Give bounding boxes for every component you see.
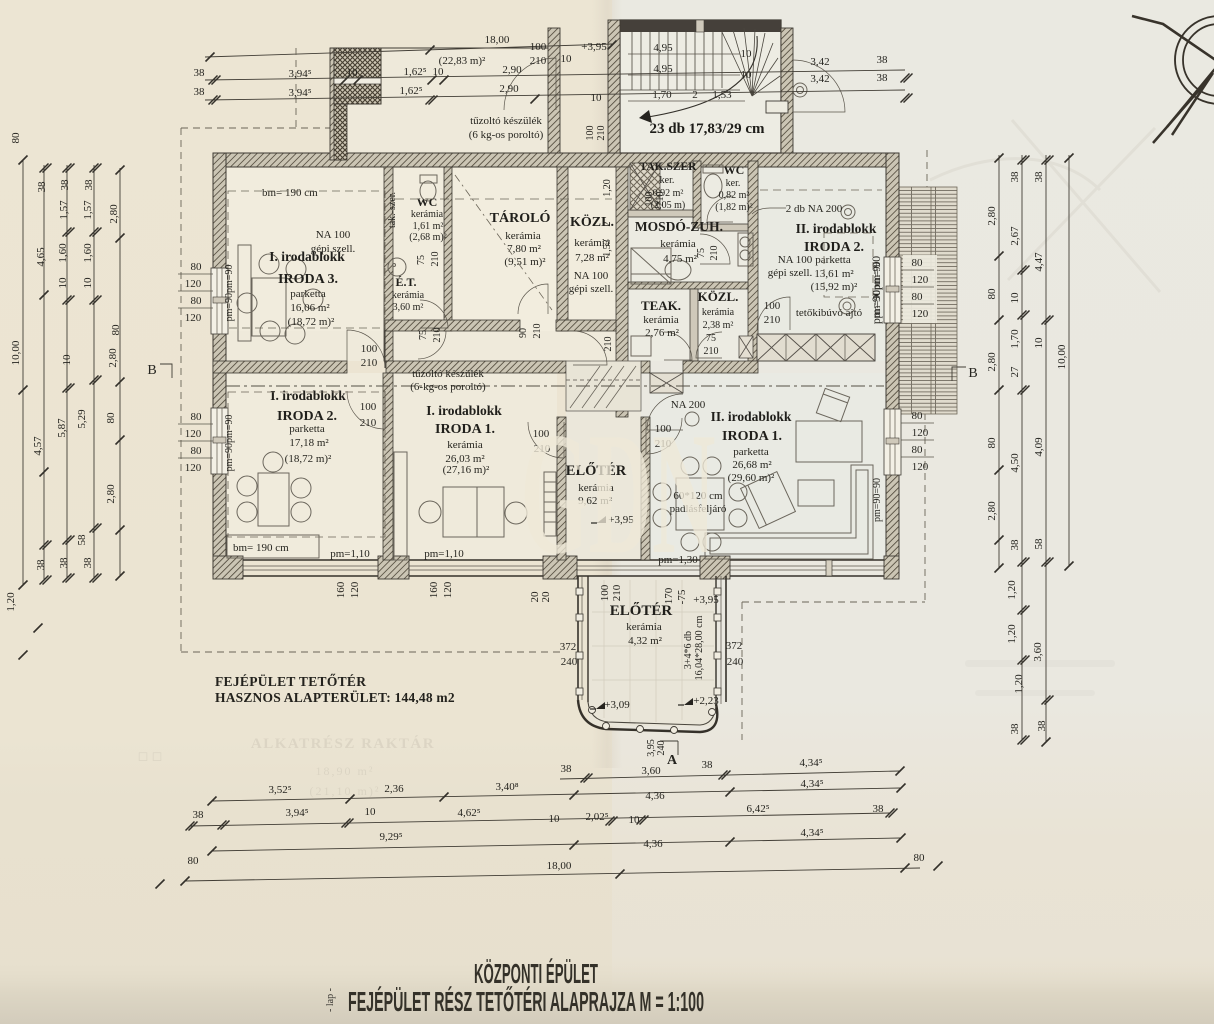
svg-text:pm=90pm=90: pm=90pm=90 xyxy=(872,262,883,319)
svg-text:20: 20 xyxy=(540,591,552,603)
svg-text:38: 38 xyxy=(877,72,889,84)
svg-text:NA 100: NA 100 xyxy=(778,254,813,266)
svg-text:4,47: 4,47 xyxy=(1033,252,1045,272)
svg-text:1,70: 1,70 xyxy=(1009,329,1021,349)
svg-text:10: 10 xyxy=(741,48,753,60)
svg-text:(27,16 m)²: (27,16 m)² xyxy=(443,464,490,476)
svg-text:120: 120 xyxy=(912,461,929,473)
svg-text:58: 58 xyxy=(1033,538,1045,550)
svg-text:1,70: 1,70 xyxy=(652,89,672,101)
svg-text:tűzoltó készülék: tűzoltó készülék xyxy=(470,115,542,127)
svg-text:gépi szell.: gépi szell. xyxy=(569,283,614,295)
svg-text:2,90: 2,90 xyxy=(502,64,522,76)
svg-text:WC: WC xyxy=(417,195,438,209)
svg-text:80: 80 xyxy=(105,412,117,424)
svg-text:80: 80 xyxy=(10,132,22,144)
svg-text:3,60 m²: 3,60 m² xyxy=(393,302,424,313)
svg-text:1,62⁵: 1,62⁵ xyxy=(399,85,422,97)
svg-text:38: 38 xyxy=(877,54,889,66)
svg-text:kerámia: kerámia xyxy=(392,290,425,301)
svg-text:II. irodablokk: II. irodablokk xyxy=(711,409,792,424)
svg-text:10: 10 xyxy=(741,69,753,81)
svg-text:3,94⁵: 3,94⁵ xyxy=(285,807,308,819)
svg-text:80: 80 xyxy=(191,295,203,307)
svg-text:100: 100 xyxy=(360,401,377,413)
svg-text:2,36: 2,36 xyxy=(384,783,404,795)
svg-text:38: 38 xyxy=(83,179,95,191)
svg-text:38: 38 xyxy=(194,67,206,79)
svg-text:26,68 m²: 26,68 m² xyxy=(732,459,772,471)
svg-text:13,61 m²: 13,61 m² xyxy=(814,268,854,280)
svg-text:2,38 m²: 2,38 m² xyxy=(703,320,734,331)
svg-text:38: 38 xyxy=(1009,723,1021,735)
svg-text:120: 120 xyxy=(185,462,202,474)
svg-text:◻ ◻: ◻ ◻ xyxy=(138,748,163,763)
svg-text:(6 kg-os poroltó): (6 kg-os poroltó) xyxy=(469,129,544,141)
svg-text:4,75 m²: 4,75 m² xyxy=(663,253,698,265)
svg-text:ker.: ker. xyxy=(726,178,741,189)
svg-text:1,61 m²: 1,61 m² xyxy=(413,221,444,232)
svg-text:4,36: 4,36 xyxy=(645,790,665,802)
svg-text:pm=1,10: pm=1,10 xyxy=(330,548,370,560)
svg-text:pm=1,10: pm=1,10 xyxy=(424,548,464,560)
svg-text:1,57: 1,57 xyxy=(58,200,70,220)
svg-text:10: 10 xyxy=(82,277,94,289)
svg-text:kerámia: kerámia xyxy=(626,621,662,633)
svg-text:IRODA 2.: IRODA 2. xyxy=(804,240,864,255)
svg-text:2,80: 2,80 xyxy=(108,204,120,224)
svg-text:38: 38 xyxy=(1009,539,1021,551)
svg-text:I. irodablokk: I. irodablokk xyxy=(426,403,502,418)
svg-text:5,29: 5,29 xyxy=(76,409,88,429)
svg-text:4,34⁵: 4,34⁵ xyxy=(799,757,822,769)
svg-text:4,95: 4,95 xyxy=(653,42,673,54)
svg-text:2,80: 2,80 xyxy=(986,501,998,521)
svg-text:75: 75 xyxy=(418,330,429,340)
svg-text:210: 210 xyxy=(361,357,378,369)
svg-text:3,60: 3,60 xyxy=(1032,642,1044,662)
svg-text:kerámia: kerámia xyxy=(702,307,735,318)
svg-text:120: 120 xyxy=(442,581,454,598)
svg-text:80: 80 xyxy=(912,444,924,456)
svg-text:10: 10 xyxy=(549,813,561,825)
svg-text:pm=90=90: pm=90=90 xyxy=(872,478,883,522)
svg-text:4,50: 4,50 xyxy=(1009,453,1021,473)
svg-text:B: B xyxy=(968,366,977,381)
svg-text:80: 80 xyxy=(191,411,203,423)
svg-text:IRODA 3.: IRODA 3. xyxy=(278,272,338,287)
svg-text:1,60: 1,60 xyxy=(82,243,94,263)
svg-text:2,80: 2,80 xyxy=(107,348,119,368)
svg-text:17,18 m²: 17,18 m² xyxy=(289,437,329,449)
svg-text:18,00: 18,00 xyxy=(485,34,510,46)
svg-text:4,34⁵: 4,34⁵ xyxy=(800,778,823,790)
svg-text:80: 80 xyxy=(912,257,924,269)
svg-text:pm=90pm=90: pm=90pm=90 xyxy=(224,415,235,472)
svg-text:160: 160 xyxy=(335,581,347,598)
svg-text:kerámia: kerámia xyxy=(411,209,444,220)
svg-text:120: 120 xyxy=(185,428,202,440)
svg-text:parketta: parketta xyxy=(289,423,325,435)
svg-text:(1,82 m)²: (1,82 m)² xyxy=(715,202,752,213)
svg-text:100: 100 xyxy=(530,41,547,53)
svg-text:I. irodablokk: I. irodablokk xyxy=(270,388,346,403)
svg-text:240: 240 xyxy=(727,656,744,668)
svg-text:38: 38 xyxy=(873,803,885,815)
svg-text:210: 210 xyxy=(360,417,377,429)
svg-text:120: 120 xyxy=(912,427,929,439)
svg-text:NA 100: NA 100 xyxy=(574,270,609,282)
svg-text:I. irodablokk: I. irodablokk xyxy=(269,249,345,264)
svg-text:gépi szell.: gépi szell. xyxy=(768,267,813,279)
svg-text:38: 38 xyxy=(193,809,205,821)
svg-text:38: 38 xyxy=(1009,171,1021,183)
svg-text:1,62⁵: 1,62⁵ xyxy=(403,66,426,78)
svg-text:75: 75 xyxy=(696,248,707,258)
svg-text:(21,10 m)²: (21,10 m)² xyxy=(310,784,381,798)
svg-text:parketta: parketta xyxy=(290,288,326,300)
svg-text:(15,92 m)²: (15,92 m)² xyxy=(811,281,858,293)
svg-text:4,36: 4,36 xyxy=(643,838,663,850)
svg-text:6,42⁵: 6,42⁵ xyxy=(746,803,769,815)
svg-text:4,34⁵: 4,34⁵ xyxy=(800,827,823,839)
svg-text:80: 80 xyxy=(986,288,998,300)
svg-text:10: 10 xyxy=(591,92,603,104)
svg-text:38: 38 xyxy=(1036,720,1048,732)
svg-text:80: 80 xyxy=(191,261,203,273)
svg-text:kerámia: kerámia xyxy=(660,238,696,250)
svg-text:80: 80 xyxy=(914,852,926,864)
svg-text:120: 120 xyxy=(912,274,929,286)
svg-text:(6-kg-os poroltó): (6-kg-os poroltó) xyxy=(410,381,486,393)
svg-text:210: 210 xyxy=(596,126,607,141)
svg-text:27: 27 xyxy=(1009,366,1021,378)
svg-text:IRODA 1.: IRODA 1. xyxy=(722,429,782,444)
svg-text:80: 80 xyxy=(191,445,203,457)
svg-text:1,53: 1,53 xyxy=(602,239,613,257)
svg-text:10: 10 xyxy=(561,53,573,65)
svg-text:16,06 m²: 16,06 m² xyxy=(290,302,330,314)
svg-text:(22,83 m)²: (22,83 m)² xyxy=(439,55,486,67)
svg-text:38: 38 xyxy=(58,557,70,569)
svg-text:bm= 190 cm: bm= 190 cm xyxy=(233,542,289,554)
svg-text:100: 100 xyxy=(764,300,781,312)
svg-text:210: 210 xyxy=(430,252,441,267)
svg-text:(18,72 m)²: (18,72 m)² xyxy=(285,453,332,465)
svg-text:KÖZPONTI ÉPÜLET: KÖZPONTI ÉPÜLET xyxy=(474,958,598,989)
svg-text:4,65: 4,65 xyxy=(35,247,47,267)
svg-text:TAK.SZER: TAK.SZER xyxy=(640,161,698,173)
svg-text:(18,72 m)²: (18,72 m)² xyxy=(288,316,335,328)
svg-text:(9,51 m)²: (9,51 m)² xyxy=(504,256,546,268)
svg-text:160: 160 xyxy=(428,581,440,598)
svg-text:240: 240 xyxy=(656,741,667,756)
svg-text:210: 210 xyxy=(603,337,614,352)
svg-text:210: 210 xyxy=(655,192,666,207)
svg-text:80: 80 xyxy=(912,291,924,303)
svg-text:100: 100 xyxy=(361,343,378,355)
svg-text:2,80: 2,80 xyxy=(986,352,998,372)
svg-text:16,04*28,00 cm: 16,04*28,00 cm xyxy=(694,615,705,680)
svg-text:90: 90 xyxy=(518,328,529,338)
svg-text:120: 120 xyxy=(185,312,202,324)
svg-text:-75: -75 xyxy=(676,589,688,604)
svg-text:KÖZL.: KÖZL. xyxy=(698,289,739,304)
svg-text:210: 210 xyxy=(764,314,781,326)
svg-text:2,02⁵: 2,02⁵ xyxy=(585,811,608,823)
svg-text:10,00: 10,00 xyxy=(10,340,22,365)
svg-text:38: 38 xyxy=(36,181,48,193)
svg-text:3,52⁵: 3,52⁵ xyxy=(268,784,291,796)
svg-text:1,53: 1,53 xyxy=(712,89,732,101)
svg-text:10,00: 10,00 xyxy=(1056,344,1068,369)
svg-text:10: 10 xyxy=(1009,292,1021,304)
svg-text:58: 58 xyxy=(76,534,88,546)
svg-text:2,80: 2,80 xyxy=(986,206,998,226)
svg-text:372: 372 xyxy=(726,640,743,652)
svg-text:4,62⁵: 4,62⁵ xyxy=(457,807,480,819)
svg-text:240: 240 xyxy=(561,656,578,668)
svg-text:TÁROLÓ: TÁROLÓ xyxy=(490,209,551,226)
svg-text:2: 2 xyxy=(602,222,613,227)
svg-text:- lap -: - lap - xyxy=(325,988,336,1012)
svg-text:3,60: 3,60 xyxy=(641,765,661,777)
svg-text:10: 10 xyxy=(433,66,445,78)
svg-text:MOSDÓ-ZUH.: MOSDÓ-ZUH. xyxy=(635,219,723,234)
svg-text:4,09: 4,09 xyxy=(1033,437,1045,457)
svg-text:parketta: parketta xyxy=(733,446,769,458)
svg-text:120: 120 xyxy=(349,581,361,598)
svg-text:4,57: 4,57 xyxy=(32,436,44,456)
svg-text:(2,68 m)²: (2,68 m)² xyxy=(409,232,446,243)
svg-text:3,42: 3,42 xyxy=(810,56,829,68)
svg-text:372: 372 xyxy=(560,641,577,653)
svg-text:3,94⁵: 3,94⁵ xyxy=(288,87,311,99)
svg-text:É.T.: É.T. xyxy=(395,275,416,289)
svg-text:2,76 m²: 2,76 m² xyxy=(645,327,680,339)
svg-text:18,90 m²: 18,90 m² xyxy=(316,764,375,778)
svg-text:ker.: ker. xyxy=(660,175,675,186)
svg-text:18,00: 18,00 xyxy=(547,860,572,872)
svg-text:A: A xyxy=(667,753,678,768)
svg-text:2: 2 xyxy=(692,89,698,101)
svg-text:2 db NA 200: 2 db NA 200 xyxy=(786,203,843,215)
svg-text:38: 38 xyxy=(82,557,94,569)
svg-text:+3,95: +3,95 xyxy=(581,41,607,53)
svg-text:kerámia: kerámia xyxy=(643,314,679,326)
svg-text:3,94⁵: 3,94⁵ xyxy=(288,68,311,80)
svg-text:210: 210 xyxy=(704,346,719,357)
svg-text:10: 10 xyxy=(57,277,69,289)
svg-text:1,20: 1,20 xyxy=(1006,580,1018,600)
svg-text:3,40⁸: 3,40⁸ xyxy=(495,781,518,793)
svg-text:ALKATRÉSZ RAKTÁR: ALKATRÉSZ RAKTÁR xyxy=(251,735,435,752)
svg-text:75: 75 xyxy=(416,255,427,265)
svg-text:9,29⁵: 9,29⁵ xyxy=(379,831,402,843)
svg-text:210: 210 xyxy=(532,324,543,339)
svg-text:GDN: GDN xyxy=(521,396,716,590)
svg-text:FEJÉPÜLET RÉSZ TETŐTÉRI ALAPRA: FEJÉPÜLET RÉSZ TETŐTÉRI ALAPRAJZA M = 1:… xyxy=(348,986,704,1017)
svg-text:1,57: 1,57 xyxy=(82,200,94,220)
svg-text:1,60: 1,60 xyxy=(57,243,69,263)
svg-text:tetőkibúvó ajtó: tetőkibúvó ajtó xyxy=(796,307,863,319)
svg-text:tak.-szer.: tak.-szer. xyxy=(387,192,398,228)
svg-text:38: 38 xyxy=(59,179,71,191)
svg-text:120: 120 xyxy=(185,278,202,290)
svg-text:10: 10 xyxy=(1033,337,1045,349)
svg-text:2,67: 2,67 xyxy=(1009,226,1021,246)
svg-text:3+4*6 db: 3+4*6 db xyxy=(683,631,694,669)
svg-text:kerámia: kerámia xyxy=(447,439,483,451)
svg-text:38: 38 xyxy=(702,759,714,771)
svg-text:100: 100 xyxy=(585,126,596,141)
svg-text:IRODA 2.: IRODA 2. xyxy=(277,409,337,424)
svg-text:IRODA 1.: IRODA 1. xyxy=(435,422,495,437)
svg-text:HASZNOS ALAPTERÜLET: 144,48 m2: HASZNOS ALAPTERÜLET: 144,48 m2 xyxy=(215,690,455,705)
svg-text:parketta: parketta xyxy=(815,254,851,266)
svg-text:2,80: 2,80 xyxy=(105,484,117,504)
svg-text:1,20: 1,20 xyxy=(602,179,613,197)
svg-text:38: 38 xyxy=(1033,171,1045,183)
svg-text:+3,95: +3,95 xyxy=(693,594,719,606)
svg-text:80: 80 xyxy=(110,324,122,336)
svg-text:pm=90pm=90: pm=90pm=90 xyxy=(224,265,235,322)
svg-text:1,20: 1,20 xyxy=(1006,624,1018,644)
svg-text:38: 38 xyxy=(561,763,573,775)
svg-text:2,90: 2,90 xyxy=(499,83,519,95)
svg-text:80: 80 xyxy=(986,437,998,449)
svg-text:210: 210 xyxy=(530,55,547,67)
svg-text:38: 38 xyxy=(194,86,206,98)
svg-text:FEJÉPÜLET TETŐTÉR: FEJÉPÜLET TETŐTÉR xyxy=(215,674,366,689)
svg-text:80: 80 xyxy=(912,410,924,422)
svg-text:tűzoltó készülék: tűzoltó készülék xyxy=(412,368,484,380)
svg-text:1,20: 1,20 xyxy=(5,592,17,612)
svg-text:NA 100: NA 100 xyxy=(316,229,351,241)
svg-text:WC: WC xyxy=(724,163,745,177)
svg-text:+2,23: +2,23 xyxy=(693,695,719,707)
svg-text:+3,09: +3,09 xyxy=(604,699,630,711)
svg-text:120: 120 xyxy=(912,308,929,320)
svg-text:3,42: 3,42 xyxy=(810,73,829,85)
svg-text:10: 10 xyxy=(61,354,73,366)
svg-text:II. irodablokk: II. irodablokk xyxy=(796,221,877,236)
svg-text:210: 210 xyxy=(432,328,443,343)
svg-text:B: B xyxy=(147,363,156,378)
svg-text:100: 100 xyxy=(644,192,655,207)
svg-text:210: 210 xyxy=(709,246,720,261)
svg-text:4,32 m²: 4,32 m² xyxy=(628,635,663,647)
svg-text:10: 10 xyxy=(365,806,377,818)
svg-text:10: 10 xyxy=(629,814,641,826)
svg-text:0,82 m²: 0,82 m² xyxy=(719,190,750,201)
svg-text:38: 38 xyxy=(35,559,47,571)
svg-text:(29,60 m)²: (29,60 m)² xyxy=(728,472,775,484)
svg-text:80: 80 xyxy=(188,855,200,867)
svg-text:23 db 17,83/29 cm: 23 db 17,83/29 cm xyxy=(649,121,765,137)
svg-text:kerámia: kerámia xyxy=(505,230,541,242)
svg-text:7,80 m²: 7,80 m² xyxy=(507,243,542,255)
svg-text:TEAK.: TEAK. xyxy=(641,298,681,313)
svg-text:bm= 190 cm: bm= 190 cm xyxy=(262,187,318,199)
svg-text:75: 75 xyxy=(706,333,716,344)
svg-text:5,87: 5,87 xyxy=(56,418,68,438)
